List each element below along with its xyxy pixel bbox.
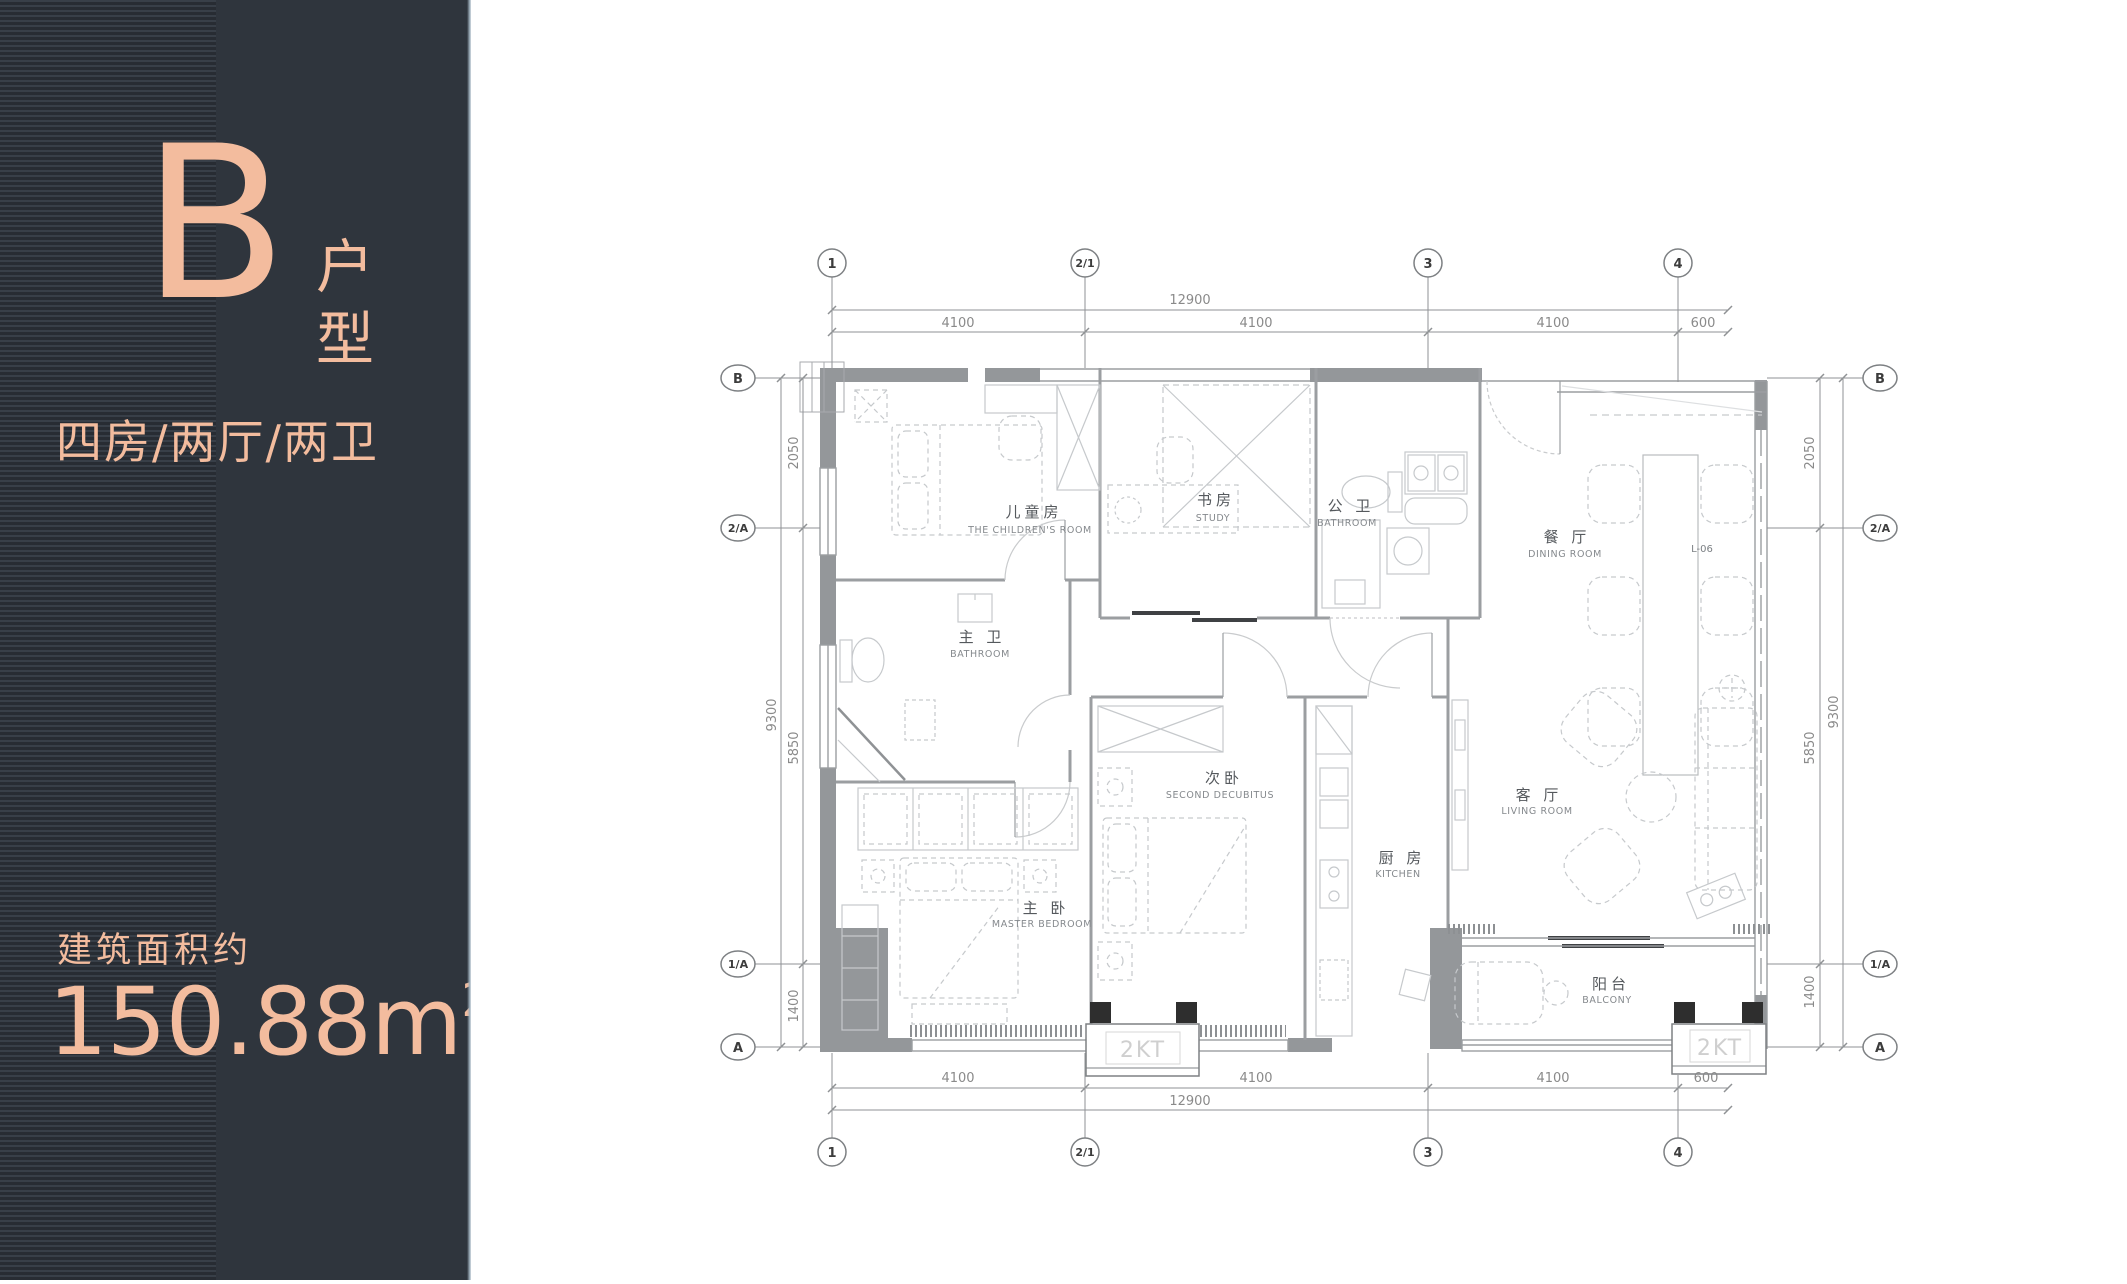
svg-text:儿童房: 儿童房 <box>1005 503 1062 521</box>
svg-text:5850: 5850 <box>1803 731 1818 764</box>
svg-text:餐 厅: 餐 厅 <box>1544 528 1591 546</box>
svg-text:2050: 2050 <box>787 436 802 469</box>
room-label-balcony: 阳台BALCONY <box>1582 975 1632 1006</box>
svg-text:主 卧: 主 卧 <box>1023 899 1070 917</box>
grid-marker: 1/A <box>728 958 749 971</box>
public-bath-fixtures <box>1322 452 1467 608</box>
svg-text:阳台: 阳台 <box>1592 975 1630 993</box>
svg-text:4100: 4100 <box>1536 316 1569 331</box>
living-room-furniture <box>1452 675 1757 919</box>
grid-marker: B <box>733 372 743 387</box>
bay-window-1: 2KT <box>1086 1002 1199 1076</box>
grid-marker: 2/1 <box>1075 1146 1094 1159</box>
room-label-master-bedroom: 主 卧MASTER BEDROOM <box>992 899 1092 930</box>
study-furniture <box>1108 385 1310 533</box>
area-value: 150.88m2 <box>48 968 491 1077</box>
svg-text:LIVING ROOM: LIVING ROOM <box>1501 806 1572 817</box>
svg-text:公 卫: 公 卫 <box>1328 497 1375 515</box>
grid-marker: 1/A <box>1870 958 1891 971</box>
room-label-children: 儿童房THE CHILDREN'S ROOM <box>967 503 1092 536</box>
svg-text:次卧: 次卧 <box>1205 769 1243 787</box>
svg-text:客 厅: 客 厅 <box>1516 786 1563 804</box>
room-label-living: 客 厅LIVING ROOM <box>1501 786 1572 817</box>
grid-marker: B <box>1875 372 1885 387</box>
svg-text:DINING ROOM: DINING ROOM <box>1528 549 1602 560</box>
svg-text:BATHROOM: BATHROOM <box>950 649 1010 660</box>
grid-marker: A <box>1875 1041 1885 1056</box>
svg-text:THE CHILDREN'S ROOM: THE CHILDREN'S ROOM <box>967 525 1092 536</box>
children-room-furniture <box>855 385 1100 535</box>
dining-table-code: L-06 <box>1691 544 1713 555</box>
room-label-study: 书房STUDY <box>1196 491 1235 524</box>
room-layout-summary: 四房/两厅/两卫 <box>56 406 379 472</box>
dim-bottom-total: 12900 <box>1169 1094 1210 1109</box>
dim-left-total: 9300 <box>765 698 780 731</box>
room-label-master-bath: 主 卫BATHROOM <box>950 628 1010 660</box>
svg-text:1400: 1400 <box>1803 975 1818 1008</box>
unit-type-char: 型 <box>316 310 374 368</box>
unit-type-char: 户 <box>316 238 374 296</box>
area-caption: 建筑面积约 <box>57 922 252 973</box>
svg-text:4100: 4100 <box>1239 316 1272 331</box>
bay-tag: 2KT <box>1120 1038 1166 1063</box>
second-bedroom-furniture <box>1098 706 1246 980</box>
grid-marker: 2/A <box>728 522 749 535</box>
unit-letter: B <box>142 118 287 330</box>
kitchen-furniture <box>1316 706 1352 1036</box>
floor-plan-drawing: 2KT 2KT <box>471 0 2127 1280</box>
room-label-dining: 餐 厅DINING ROOM <box>1528 528 1602 560</box>
dim-top-total: 12900 <box>1169 293 1210 308</box>
svg-text:2050: 2050 <box>1803 436 1818 469</box>
grid-marker: 3 <box>1423 257 1432 272</box>
bay-window-2: 2KT <box>1672 1002 1766 1074</box>
door-arcs <box>1005 381 1560 837</box>
grid-marker: 4 <box>1673 1146 1682 1161</box>
wall-notch <box>968 366 985 384</box>
grid-marker: 1 <box>827 257 836 272</box>
master-bath-fixtures <box>838 594 992 782</box>
info-panel: B 户 型 四房/两厅/两卫 建筑面积约 150.88m2 <box>0 0 471 1280</box>
interior-walls <box>836 368 1480 1040</box>
grid-marker: 3 <box>1423 1146 1432 1161</box>
svg-text:主 卫: 主 卫 <box>959 628 1006 646</box>
dining-furniture <box>1562 386 1762 775</box>
svg-text:书房: 书房 <box>1197 491 1235 509</box>
svg-text:厨 房: 厨 房 <box>1379 849 1426 867</box>
room-label-kitchen: 厨 房KITCHEN <box>1375 849 1425 880</box>
floor-plan-area: 2KT 2KT <box>471 0 2127 1280</box>
svg-text:5850: 5850 <box>787 731 802 764</box>
grid-marker: A <box>733 1041 743 1056</box>
svg-text:BALCONY: BALCONY <box>1582 995 1632 1006</box>
svg-text:MASTER BEDROOM: MASTER BEDROOM <box>992 919 1092 930</box>
bay-tag: 2KT <box>1697 1036 1743 1061</box>
svg-text:BATHROOM: BATHROOM <box>1317 518 1377 529</box>
svg-text:4100: 4100 <box>941 1071 974 1086</box>
svg-text:SECOND DECUBITUS: SECOND DECUBITUS <box>1166 790 1274 801</box>
grid-marker: 2/A <box>1870 522 1891 535</box>
dim-right-total: 9300 <box>1827 695 1842 728</box>
unit-type-label: 户 型 <box>316 238 374 368</box>
grid-marker: 2/1 <box>1075 257 1094 270</box>
balcony-furniture <box>1455 962 1568 1024</box>
grid-marker: 1 <box>827 1146 836 1161</box>
svg-text:4100: 4100 <box>941 316 974 331</box>
svg-text:STUDY: STUDY <box>1196 513 1230 524</box>
svg-text:1400: 1400 <box>787 989 802 1022</box>
svg-text:600: 600 <box>1691 316 1716 331</box>
svg-text:4100: 4100 <box>1536 1071 1569 1086</box>
svg-text:4100: 4100 <box>1239 1071 1272 1086</box>
grid-marker: 4 <box>1673 257 1682 272</box>
svg-text:KITCHEN: KITCHEN <box>1375 869 1420 880</box>
room-label-public-bath: 公 卫BATHROOM <box>1317 497 1377 529</box>
svg-text:600: 600 <box>1694 1071 1719 1086</box>
room-label-second-bedroom: 次卧SECOND DECUBITUS <box>1166 769 1274 801</box>
